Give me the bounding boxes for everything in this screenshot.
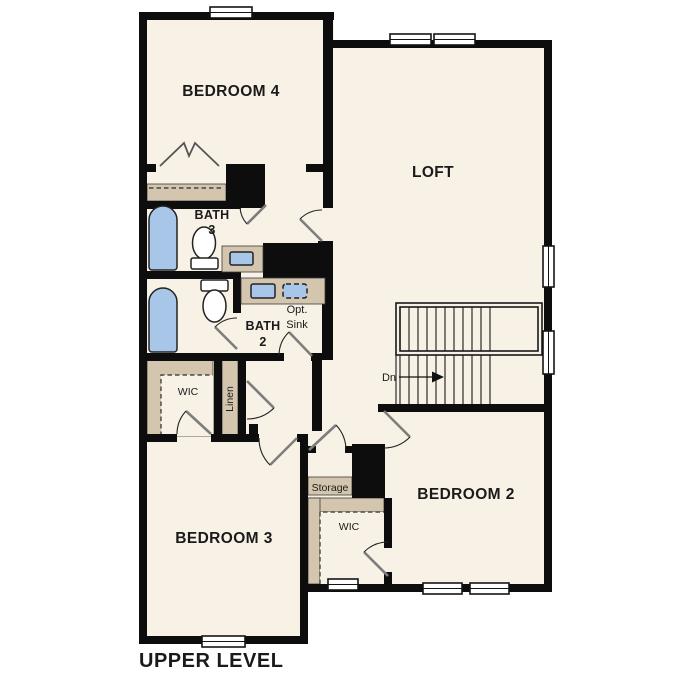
optional-sink-label-line2: Sink [286,319,308,331]
wall [238,357,246,437]
wall [306,164,333,172]
wall [263,243,333,278]
optional-sink [283,284,307,298]
wall [312,360,322,431]
bathtub [149,206,177,270]
sink [251,284,275,298]
room-label-bath-3-line2: 3 [208,223,215,237]
wall [214,357,222,437]
room-label-bedroom-3: BEDROOM 3 [175,530,272,547]
toilet-bowl [203,290,226,322]
toilet-tank [191,258,218,269]
floor-plan-drawing: BEDROOM 4 LOFT BATH 3 BATH 2 Opt. Sink W… [0,0,687,687]
wall [211,434,259,442]
wic-upper-floor [161,375,213,436]
room-label-bedroom-2: BEDROOM 2 [417,486,514,503]
wall [300,434,308,644]
floor-plan: BEDROOM 4 LOFT BATH 3 BATH 2 Opt. Sink W… [0,0,687,687]
wall [139,164,156,172]
wall [378,404,544,412]
closet-label-wic-lower: WIC [339,521,360,533]
wall [384,498,392,548]
wall [297,434,308,442]
wall [323,12,333,208]
room-label-loft: LOFT [412,164,454,181]
sink [230,252,253,265]
room-label-bath-2-line1: BATH [246,319,281,333]
page-title: UPPER LEVEL [139,650,283,672]
wall [544,40,552,591]
wall [352,444,385,498]
wall [233,278,241,313]
wic-lower-shelf-left [308,498,320,584]
wall [139,434,177,442]
bedroom4-closet-shelf [147,184,226,201]
optional-sink-label-line1: Opt. [287,304,308,316]
closet-label-wic-upper: WIC [178,386,199,398]
wall [139,353,247,361]
stairs-down-label: Dn [382,372,396,384]
wall [311,353,322,361]
room-label-bath-2-line2: 2 [259,335,266,349]
closet-label-linen: Linen [224,386,236,412]
bathtub [149,288,177,352]
room-label-bath-3-line1: BATH [195,208,230,222]
closet-label-storage: Storage [312,482,349,494]
room-label-bedroom-4: BEDROOM 4 [182,83,279,100]
wall [139,12,147,644]
